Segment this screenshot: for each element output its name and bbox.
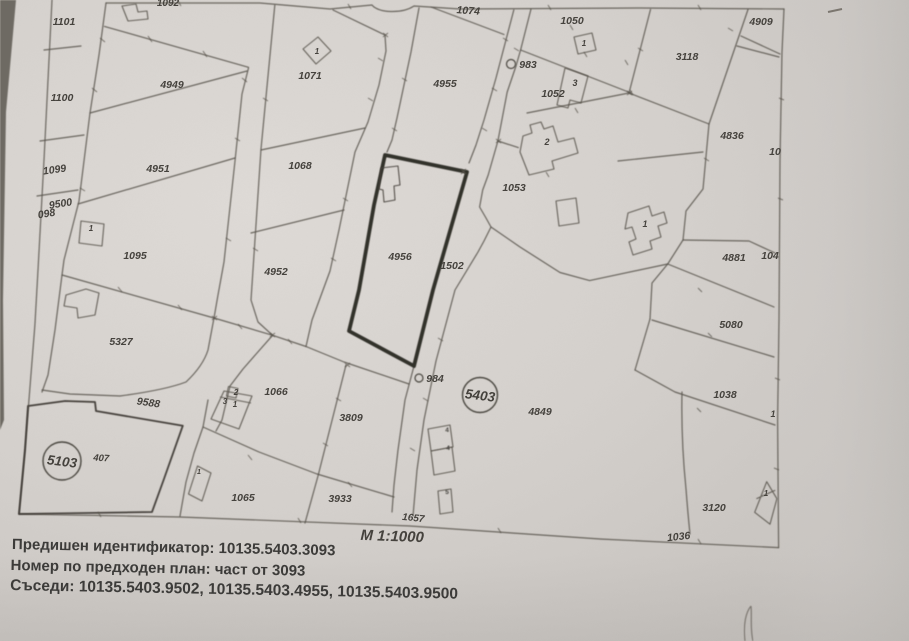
- svg-text:3: 3: [572, 78, 577, 88]
- svg-text:1: 1: [642, 219, 647, 229]
- svg-text:1092: 1092: [157, 0, 180, 9]
- svg-text:1: 1: [197, 469, 201, 476]
- svg-text:104: 104: [761, 250, 779, 262]
- svg-text:М 1:1000: М 1:1000: [360, 527, 425, 546]
- svg-text:3120: 3120: [702, 502, 726, 514]
- svg-text:1: 1: [315, 47, 320, 56]
- svg-text:4949: 4949: [159, 79, 184, 91]
- svg-text:5327: 5327: [109, 336, 134, 348]
- svg-text:1053: 1053: [502, 182, 526, 194]
- svg-text:1036: 1036: [666, 530, 691, 544]
- svg-text:1074: 1074: [456, 4, 480, 18]
- svg-text:4: 4: [446, 445, 450, 452]
- svg-text:1071: 1071: [298, 70, 322, 82]
- svg-text:1052: 1052: [541, 88, 565, 100]
- svg-text:10: 10: [769, 146, 781, 158]
- svg-text:1095: 1095: [123, 250, 147, 262]
- svg-text:407: 407: [92, 452, 110, 464]
- svg-text:3118: 3118: [676, 51, 699, 63]
- svg-text:4952: 4952: [263, 266, 288, 278]
- svg-text:4955: 4955: [432, 78, 457, 90]
- svg-text:983: 983: [519, 59, 537, 71]
- svg-text:2: 2: [543, 137, 549, 147]
- svg-text:1038: 1038: [713, 389, 737, 401]
- svg-text:2: 2: [233, 388, 239, 397]
- svg-text:1068: 1068: [288, 160, 312, 172]
- svg-text:1: 1: [233, 400, 238, 409]
- svg-text:1066: 1066: [264, 386, 288, 398]
- svg-text:1: 1: [582, 39, 587, 48]
- svg-text:5080: 5080: [719, 319, 743, 331]
- svg-text:4849: 4849: [527, 406, 552, 418]
- svg-text:4951: 4951: [145, 163, 170, 175]
- svg-text:4836: 4836: [719, 130, 744, 142]
- svg-text:1: 1: [770, 409, 775, 419]
- svg-text:5: 5: [445, 489, 449, 496]
- svg-text:1065: 1065: [231, 492, 255, 504]
- svg-text:984: 984: [426, 373, 444, 385]
- svg-text:4956: 4956: [387, 251, 412, 263]
- svg-text:1100: 1100: [51, 92, 74, 104]
- svg-text:3: 3: [223, 397, 228, 406]
- svg-text:1050: 1050: [560, 15, 584, 27]
- svg-text:1101: 1101: [53, 16, 76, 28]
- svg-text:1: 1: [764, 489, 769, 498]
- svg-text:1502: 1502: [440, 260, 464, 272]
- svg-text:3933: 3933: [328, 493, 352, 505]
- svg-text:3809: 3809: [339, 412, 363, 424]
- svg-text:4909: 4909: [748, 16, 773, 28]
- svg-text:4881: 4881: [721, 252, 746, 264]
- svg-text:4: 4: [445, 427, 449, 434]
- svg-text:1: 1: [89, 224, 94, 233]
